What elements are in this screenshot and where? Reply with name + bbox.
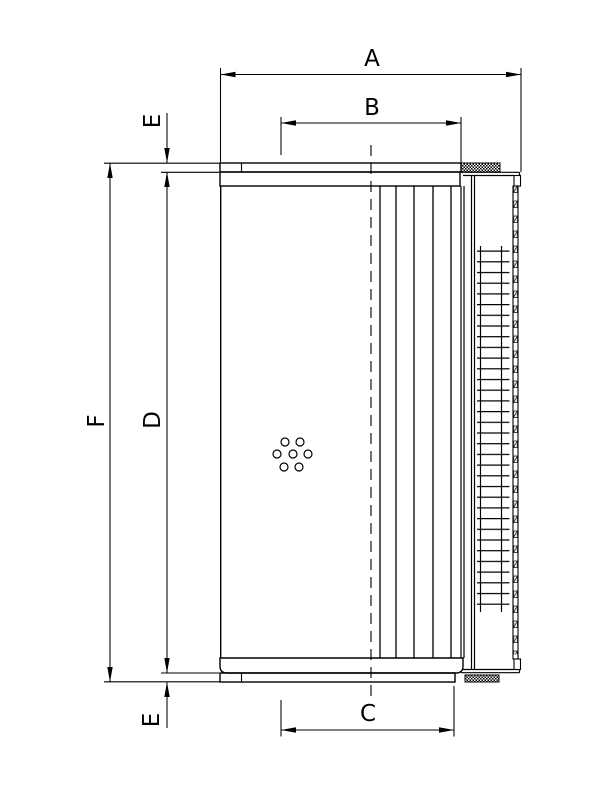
arrowhead [164, 148, 169, 163]
mesh-rungs [477, 251, 510, 606]
pleat-lines [380, 186, 451, 658]
dim-label-b: B [364, 95, 380, 121]
section-bottom-right-tab [514, 659, 521, 670]
bottom-end-cap [220, 658, 463, 673]
arrowhead [107, 667, 112, 682]
arrowhead [446, 120, 461, 125]
top-end-cap [220, 172, 460, 186]
arrowhead [164, 172, 169, 187]
dim-label-c: C [360, 701, 376, 727]
dim-label-f: F [84, 414, 110, 427]
bottom-end-plate [220, 673, 455, 682]
arrowhead [281, 727, 296, 732]
perforation-holes [273, 438, 312, 471]
section-left-wall [472, 176, 475, 670]
gasket-bottom [465, 675, 499, 682]
dim-label-e-top: E [140, 114, 166, 129]
gasket-top [461, 163, 500, 172]
arrowhead [221, 72, 236, 77]
section-bottom-surface [461, 670, 520, 673]
arrowhead [107, 163, 112, 178]
dim-label-a: A [364, 46, 380, 72]
outer-wrap-seal-segments [513, 186, 518, 655]
element-body [221, 186, 464, 658]
technical-drawing-sheet: A B C F [0, 0, 612, 792]
dim-label-e-bottom: E [139, 713, 165, 728]
section-top-right-tab [514, 176, 521, 187]
filter-element-section-view [461, 163, 521, 682]
filter-element-side-view [220, 145, 464, 702]
dim-D: D [140, 172, 219, 673]
dim-C: C [281, 686, 454, 737]
arrowhead [164, 658, 169, 673]
outer-wrap-channel [513, 186, 518, 660]
dim-E-bottom: E [139, 682, 170, 728]
arrowhead [281, 120, 296, 125]
support-mesh [477, 246, 510, 612]
dim-E-top: E [140, 113, 170, 163]
section-top-surface [461, 172, 520, 175]
arrowhead [439, 727, 454, 732]
arrowhead [164, 682, 169, 697]
body-right-wall [461, 186, 464, 658]
arrowhead [506, 72, 521, 77]
dimensions: A B C F [84, 46, 521, 737]
dim-label-d: D [140, 411, 166, 429]
top-end-plate [220, 163, 461, 172]
filter-element-drawing: A B C F [0, 0, 612, 792]
